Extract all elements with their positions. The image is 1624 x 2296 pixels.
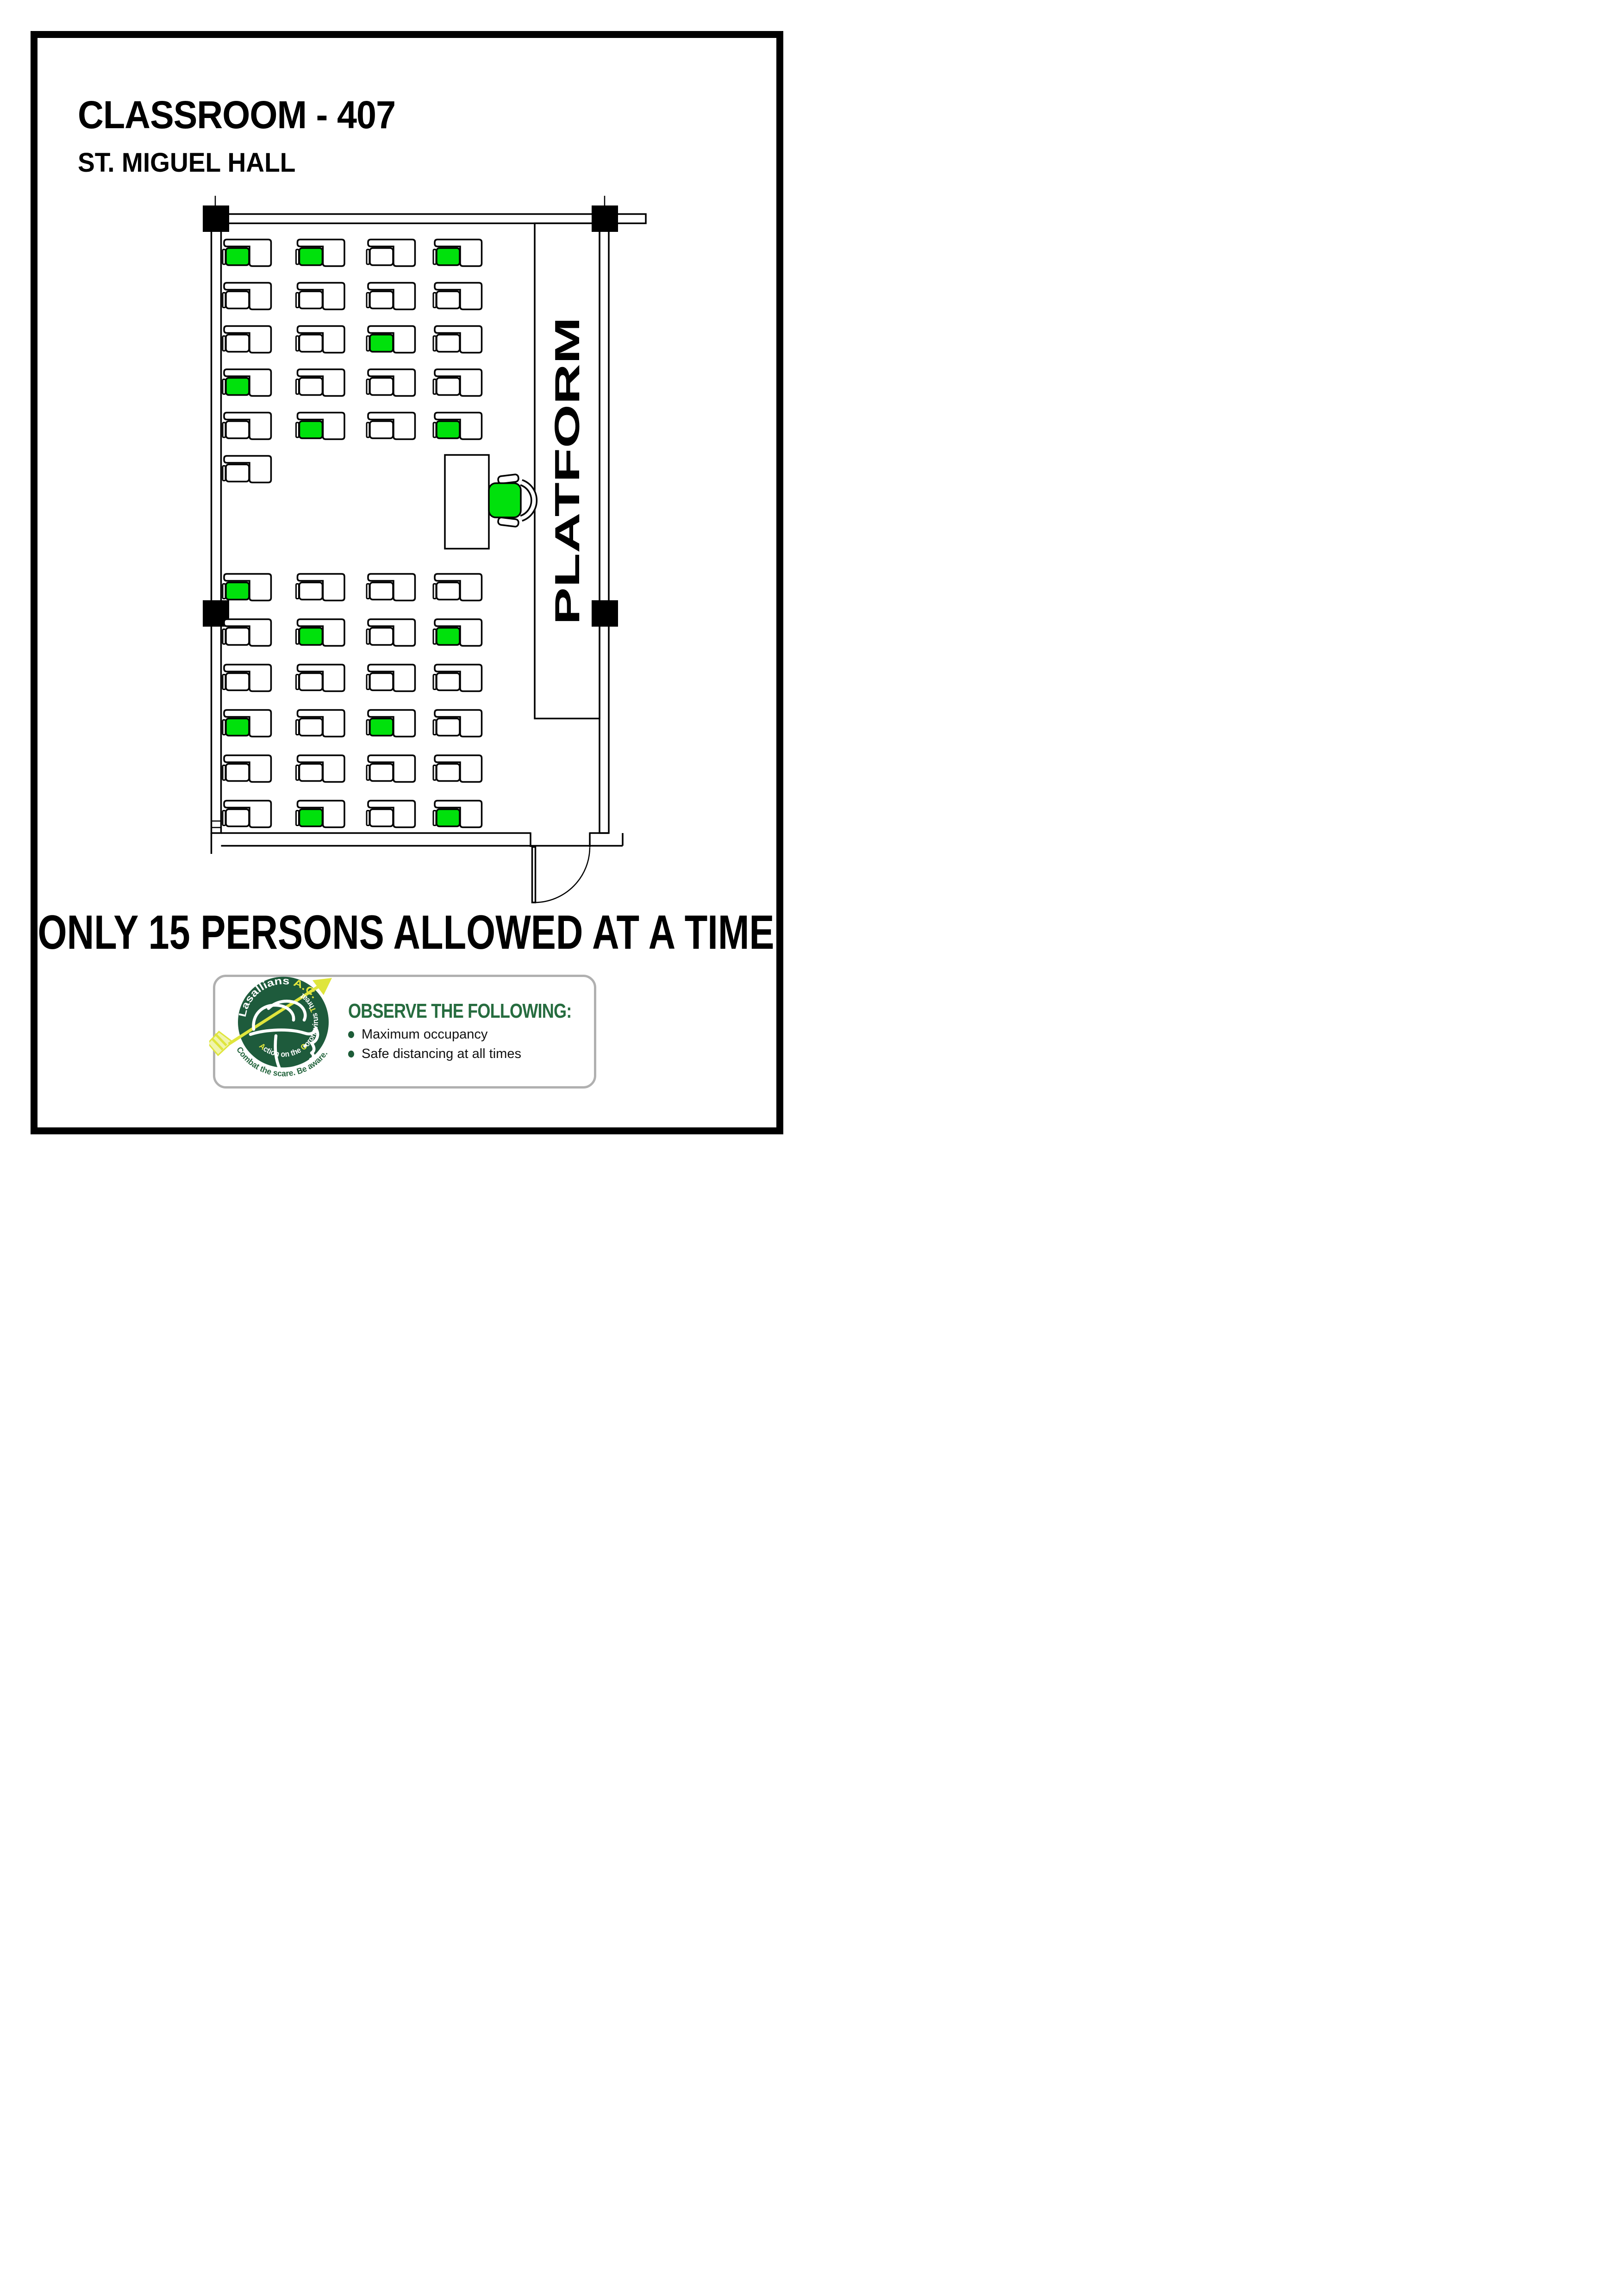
student-desk [296, 369, 345, 396]
student-chair-available [437, 628, 460, 645]
chair-back-icon [223, 811, 225, 826]
chair-back-icon [296, 293, 299, 308]
list-item: Maximum occupancy [348, 1027, 598, 1042]
student-desk [223, 574, 271, 601]
chair-back-icon [433, 675, 436, 690]
chair-back-icon [367, 584, 369, 599]
student-desk [223, 283, 271, 310]
student-desk [367, 326, 415, 353]
column-ticks [215, 196, 605, 206]
chair-back-icon [367, 380, 369, 394]
chair-back-icon [433, 811, 436, 826]
student-desk [296, 240, 345, 267]
student-desk [223, 413, 271, 440]
floor-plan: PLATFORM [194, 191, 650, 930]
student-desk [367, 369, 415, 396]
student-chair-blocked [437, 378, 460, 395]
student-chair-blocked [370, 673, 393, 691]
chair-back-icon [223, 466, 225, 481]
student-desk [433, 665, 482, 691]
chair-back-icon [223, 720, 225, 735]
student-desk [367, 710, 415, 737]
student-desk [433, 240, 482, 267]
bullet-icon [348, 1051, 354, 1058]
chair-back-icon [433, 336, 436, 351]
student-desk [223, 801, 271, 828]
student-chair-blocked [226, 764, 249, 781]
student-desk [296, 665, 345, 691]
student-desk [367, 283, 415, 310]
student-chair-available [300, 628, 323, 645]
student-desk [367, 801, 415, 828]
student-desk [433, 755, 482, 782]
student-chair-available [370, 335, 393, 352]
student-chair-available [226, 248, 249, 265]
bottom-wall-outer [221, 833, 623, 846]
student-desk [223, 326, 271, 353]
badge-text-block: OBSERVE THE FOLLOWING: Maximum occupancy… [348, 1000, 598, 1062]
student-chair-available [437, 248, 460, 265]
student-desk [223, 665, 271, 691]
chair-back-icon [296, 629, 299, 644]
platform-label: PLATFORM [548, 317, 587, 625]
chair-back-icon [367, 336, 369, 351]
student-chair-blocked [226, 809, 249, 827]
student-chair-available [437, 809, 460, 827]
student-desk [433, 574, 482, 601]
chair-back-icon [433, 629, 436, 644]
student-chair-blocked [370, 583, 393, 600]
chair-armrest [498, 517, 519, 527]
chair-back-icon [367, 765, 369, 780]
student-desks [223, 240, 482, 828]
chair-back-icon [367, 423, 369, 437]
teacher-seat [489, 483, 521, 517]
student-chair-blocked [300, 583, 323, 600]
chair-back-icon [367, 811, 369, 826]
student-desk [433, 710, 482, 737]
student-chair-blocked [300, 719, 323, 736]
lasallians-act-logo: Lasallians A.C.T. Action on the Coronavi… [209, 973, 335, 1082]
student-chair-blocked [300, 335, 323, 352]
chair-back-icon [367, 293, 369, 308]
chair-back-icon [433, 293, 436, 308]
student-chair-available [300, 809, 323, 827]
chair-back-icon [296, 720, 299, 735]
student-desk [433, 801, 482, 828]
chair-back-icon [223, 584, 225, 599]
student-chair-available [370, 719, 393, 736]
student-chair-blocked [437, 673, 460, 691]
student-chair-blocked [437, 583, 460, 600]
student-desk [367, 413, 415, 440]
badge-headline: OBSERVE THE FOLLOWING: [348, 1000, 553, 1023]
student-desk [433, 283, 482, 310]
teacher-desk [445, 455, 489, 549]
page-title: CLASSROOM - 407 [78, 93, 395, 137]
student-chair-blocked [226, 628, 249, 645]
right-wall [600, 224, 609, 834]
student-desk [296, 801, 345, 828]
student-chair-available [437, 421, 460, 438]
student-chair-available [226, 719, 249, 736]
student-chair-blocked [437, 292, 460, 309]
poster-page: CLASSROOM - 407 ST. MIGUEL HALL [0, 0, 812, 1148]
student-desk [223, 710, 271, 737]
column-pillar [592, 600, 618, 627]
student-chair-blocked [226, 465, 249, 482]
chair-back-icon [223, 380, 225, 394]
left-wall [212, 224, 221, 834]
chair-back-icon [223, 765, 225, 780]
chair-back-icon [296, 584, 299, 599]
student-chair-blocked [300, 673, 323, 691]
student-desk [296, 710, 345, 737]
student-chair-blocked [437, 764, 460, 781]
bullet-icon [348, 1031, 354, 1038]
student-chair-available [300, 421, 323, 438]
student-chair-blocked [300, 292, 323, 309]
student-desk [296, 413, 345, 440]
student-desk [296, 283, 345, 310]
chair-back-icon [223, 249, 225, 264]
chair-back-icon [296, 675, 299, 690]
student-desk [223, 619, 271, 646]
teacher-chair [489, 474, 534, 527]
bullet-label: Maximum occupancy [362, 1027, 487, 1042]
student-desk [296, 755, 345, 782]
student-chair-blocked [300, 764, 323, 781]
student-chair-blocked [370, 292, 393, 309]
chair-back-icon [296, 249, 299, 264]
student-desk [367, 755, 415, 782]
chair-back-icon [433, 249, 436, 264]
chair-back-icon [433, 423, 436, 437]
student-desk [223, 755, 271, 782]
chair-back-icon [296, 765, 299, 780]
chair-back-icon [367, 720, 369, 735]
student-chair-blocked [226, 673, 249, 691]
chair-back-icon [223, 293, 225, 308]
student-chair-blocked [300, 378, 323, 395]
student-chair-blocked [370, 378, 393, 395]
student-desk [433, 369, 482, 396]
chair-back-icon [223, 629, 225, 644]
chair-back-icon [367, 249, 369, 264]
list-item: Safe distancing at all times [348, 1046, 598, 1062]
door-jambs [531, 833, 590, 847]
student-desk [433, 413, 482, 440]
student-desk [367, 574, 415, 601]
student-chair-available [300, 248, 323, 265]
student-chair-blocked [226, 421, 249, 438]
chair-back-icon [223, 675, 225, 690]
student-desk [433, 619, 482, 646]
chair-back-icon [433, 584, 436, 599]
chair-back-icon [296, 423, 299, 437]
student-chair-blocked [226, 292, 249, 309]
student-chair-blocked [437, 335, 460, 352]
chair-back-icon [296, 380, 299, 394]
chair-back-icon [433, 720, 436, 735]
chair-back-icon [296, 811, 299, 826]
student-desk [296, 619, 345, 646]
page-subtitle: ST. MIGUEL HALL [78, 147, 295, 178]
column-pillar [592, 205, 618, 232]
door-swing-arc-icon [536, 847, 590, 903]
top-wall [215, 214, 646, 224]
chair-back-icon [223, 336, 225, 351]
chair-back-icon [367, 629, 369, 644]
student-chair-blocked [226, 335, 249, 352]
student-desk [296, 326, 345, 353]
student-chair-blocked [370, 248, 393, 265]
door-leaf-icon [532, 847, 536, 902]
bullet-label: Safe distancing at all times [362, 1046, 521, 1062]
student-chair-blocked [437, 719, 460, 736]
student-desk [223, 369, 271, 396]
student-desk [367, 665, 415, 691]
student-chair-blocked [370, 628, 393, 645]
student-desk [223, 456, 271, 483]
wall-hatch-ticks [212, 821, 221, 828]
chair-back-icon [223, 423, 225, 437]
capacity-notice: ONLY 15 PERSONS ALLOWED AT A TIME [37, 905, 774, 960]
chair-back-icon [433, 380, 436, 394]
student-desk [433, 326, 482, 353]
chair-back-icon [296, 336, 299, 351]
student-chair-available [226, 583, 249, 600]
student-desk [223, 240, 271, 267]
student-chair-blocked [370, 809, 393, 827]
chair-back-icon [367, 675, 369, 690]
student-desk [367, 619, 415, 646]
student-chair-available [226, 378, 249, 395]
student-desk [296, 574, 345, 601]
chair-back-icon [433, 765, 436, 780]
column-pillar [203, 205, 229, 232]
student-chair-blocked [370, 421, 393, 438]
student-desk [367, 240, 415, 267]
student-chair-blocked [370, 764, 393, 781]
